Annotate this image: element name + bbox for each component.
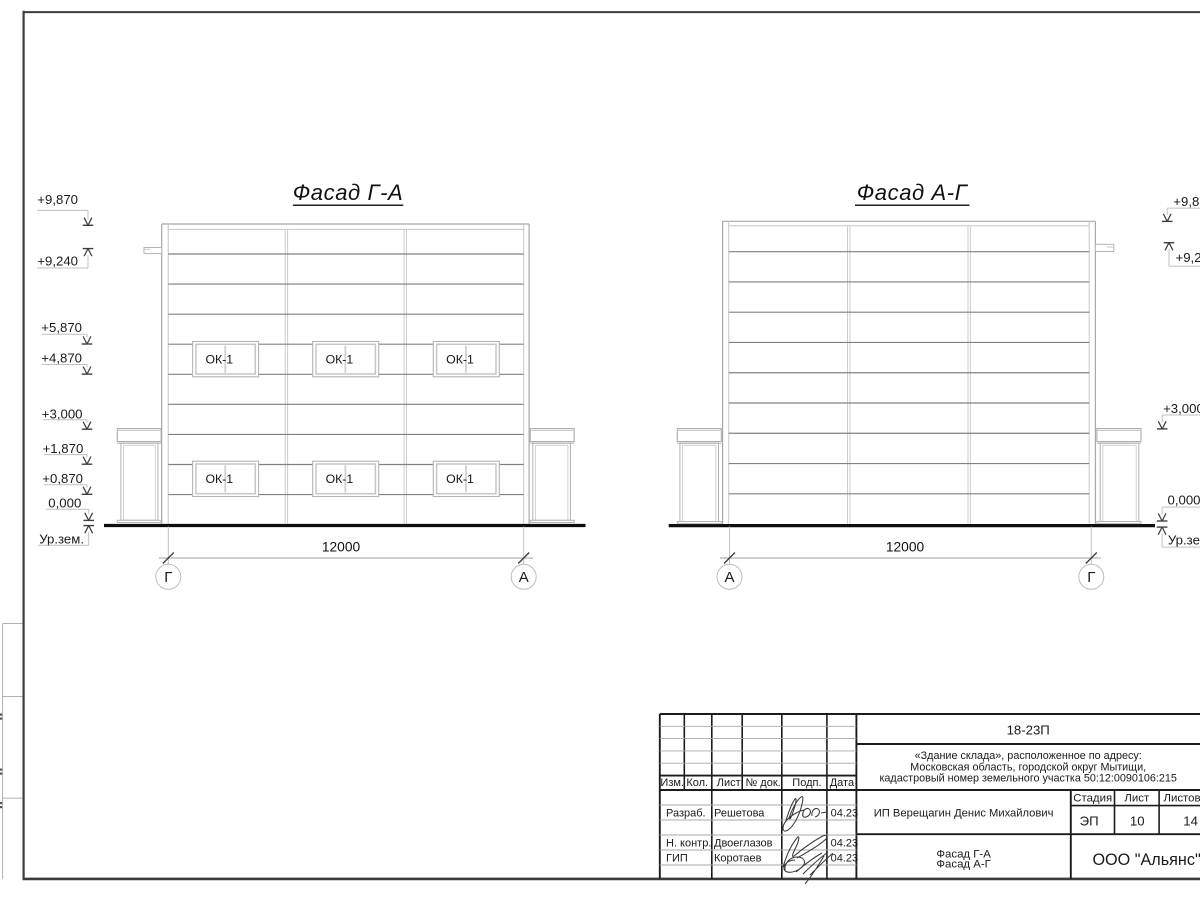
svg-text:Листов: Листов [1163,793,1200,805]
svg-text:№ док.: № док. [745,777,780,789]
svg-text:04.23: 04.23 [831,852,859,864]
svg-text:Г: Г [164,569,172,586]
svg-text:+3,000: +3,000 [1163,401,1200,416]
svg-text:ОК-1: ОК-1 [205,352,233,366]
svg-text:10: 10 [1130,813,1145,828]
svg-text:Московская область, городской: Московская область, городской округ Мыти… [910,761,1146,773]
svg-text:Лист: Лист [1124,793,1150,805]
svg-text:Фасад Г-А: Фасад Г-А [293,180,404,205]
svg-text:+0,870: +0,870 [42,471,83,486]
svg-text:18-23П: 18-23П [1007,722,1050,737]
svg-text:Ур.зем.: Ур.зем. [1168,532,1200,547]
svg-text:Изм.: Изм. [660,777,684,789]
svg-text:кадастровый номер земельного у: кадастровый номер земельного участка 50:… [879,773,1176,785]
svg-text:Решетова: Решетова [714,807,765,819]
svg-text:+9,870: +9,870 [1173,194,1200,209]
svg-text:0,000: 0,000 [48,496,81,511]
svg-text:Двоеглазов: Двоеглазов [714,837,773,849]
svg-text:+9,870: +9,870 [37,192,78,207]
svg-text:0,000: 0,000 [1168,493,1200,508]
svg-text:ОК-1: ОК-1 [446,472,474,486]
svg-text:12000: 12000 [886,539,925,554]
svg-text:ОК-1: ОК-1 [446,352,474,366]
svg-text:+3,000: +3,000 [42,406,83,421]
svg-text:ООО "Альянс": ООО "Альянс" [1092,851,1200,869]
svg-text:Коротаев: Коротаев [714,852,762,864]
svg-text:Разраб.: Разраб. [666,807,706,819]
svg-text:Дата: Дата [830,777,855,789]
svg-text:Стадия: Стадия [1073,793,1112,805]
svg-text:04.23: 04.23 [831,807,859,819]
svg-text:Кол.: Кол. [686,777,708,789]
svg-text:Подп.: Подп. [792,777,821,789]
svg-text:+1,870: +1,870 [43,441,84,456]
svg-text:ОК-1: ОК-1 [326,352,354,366]
svg-text:04.23: 04.23 [831,837,859,849]
svg-text:ИП Верещагин Денис Михайлович: ИП Верещагин Денис Михайлович [874,808,1054,820]
svg-text:+5,870: +5,870 [41,320,82,335]
svg-text:Лист: Лист [717,777,741,789]
svg-text:ОК-1: ОК-1 [326,472,354,486]
svg-text:А: А [724,569,734,586]
svg-text:Фасад А-Г: Фасад А-Г [857,180,969,205]
svg-text:Г: Г [1087,569,1095,586]
svg-text:14: 14 [1183,813,1198,828]
svg-text:ГИП: ГИП [666,852,688,864]
svg-text:+9,240: +9,240 [37,254,78,269]
svg-text:12000: 12000 [322,539,361,554]
svg-text:ЭП: ЭП [1080,813,1099,828]
svg-text:Ур.зем.: Ур.зем. [39,532,84,547]
svg-text:+4,870: +4,870 [41,351,82,366]
svg-text:Фасад А-Г: Фасад А-Г [936,858,990,870]
svg-text:+9,240: +9,240 [1176,250,1200,265]
svg-text:«Здание склада», расположенное: «Здание склада», расположенное по адресу… [915,750,1142,762]
svg-text:ОК-1: ОК-1 [205,472,233,486]
svg-text:А: А [519,569,529,586]
svg-text:Н. контр.: Н. контр. [666,837,711,849]
